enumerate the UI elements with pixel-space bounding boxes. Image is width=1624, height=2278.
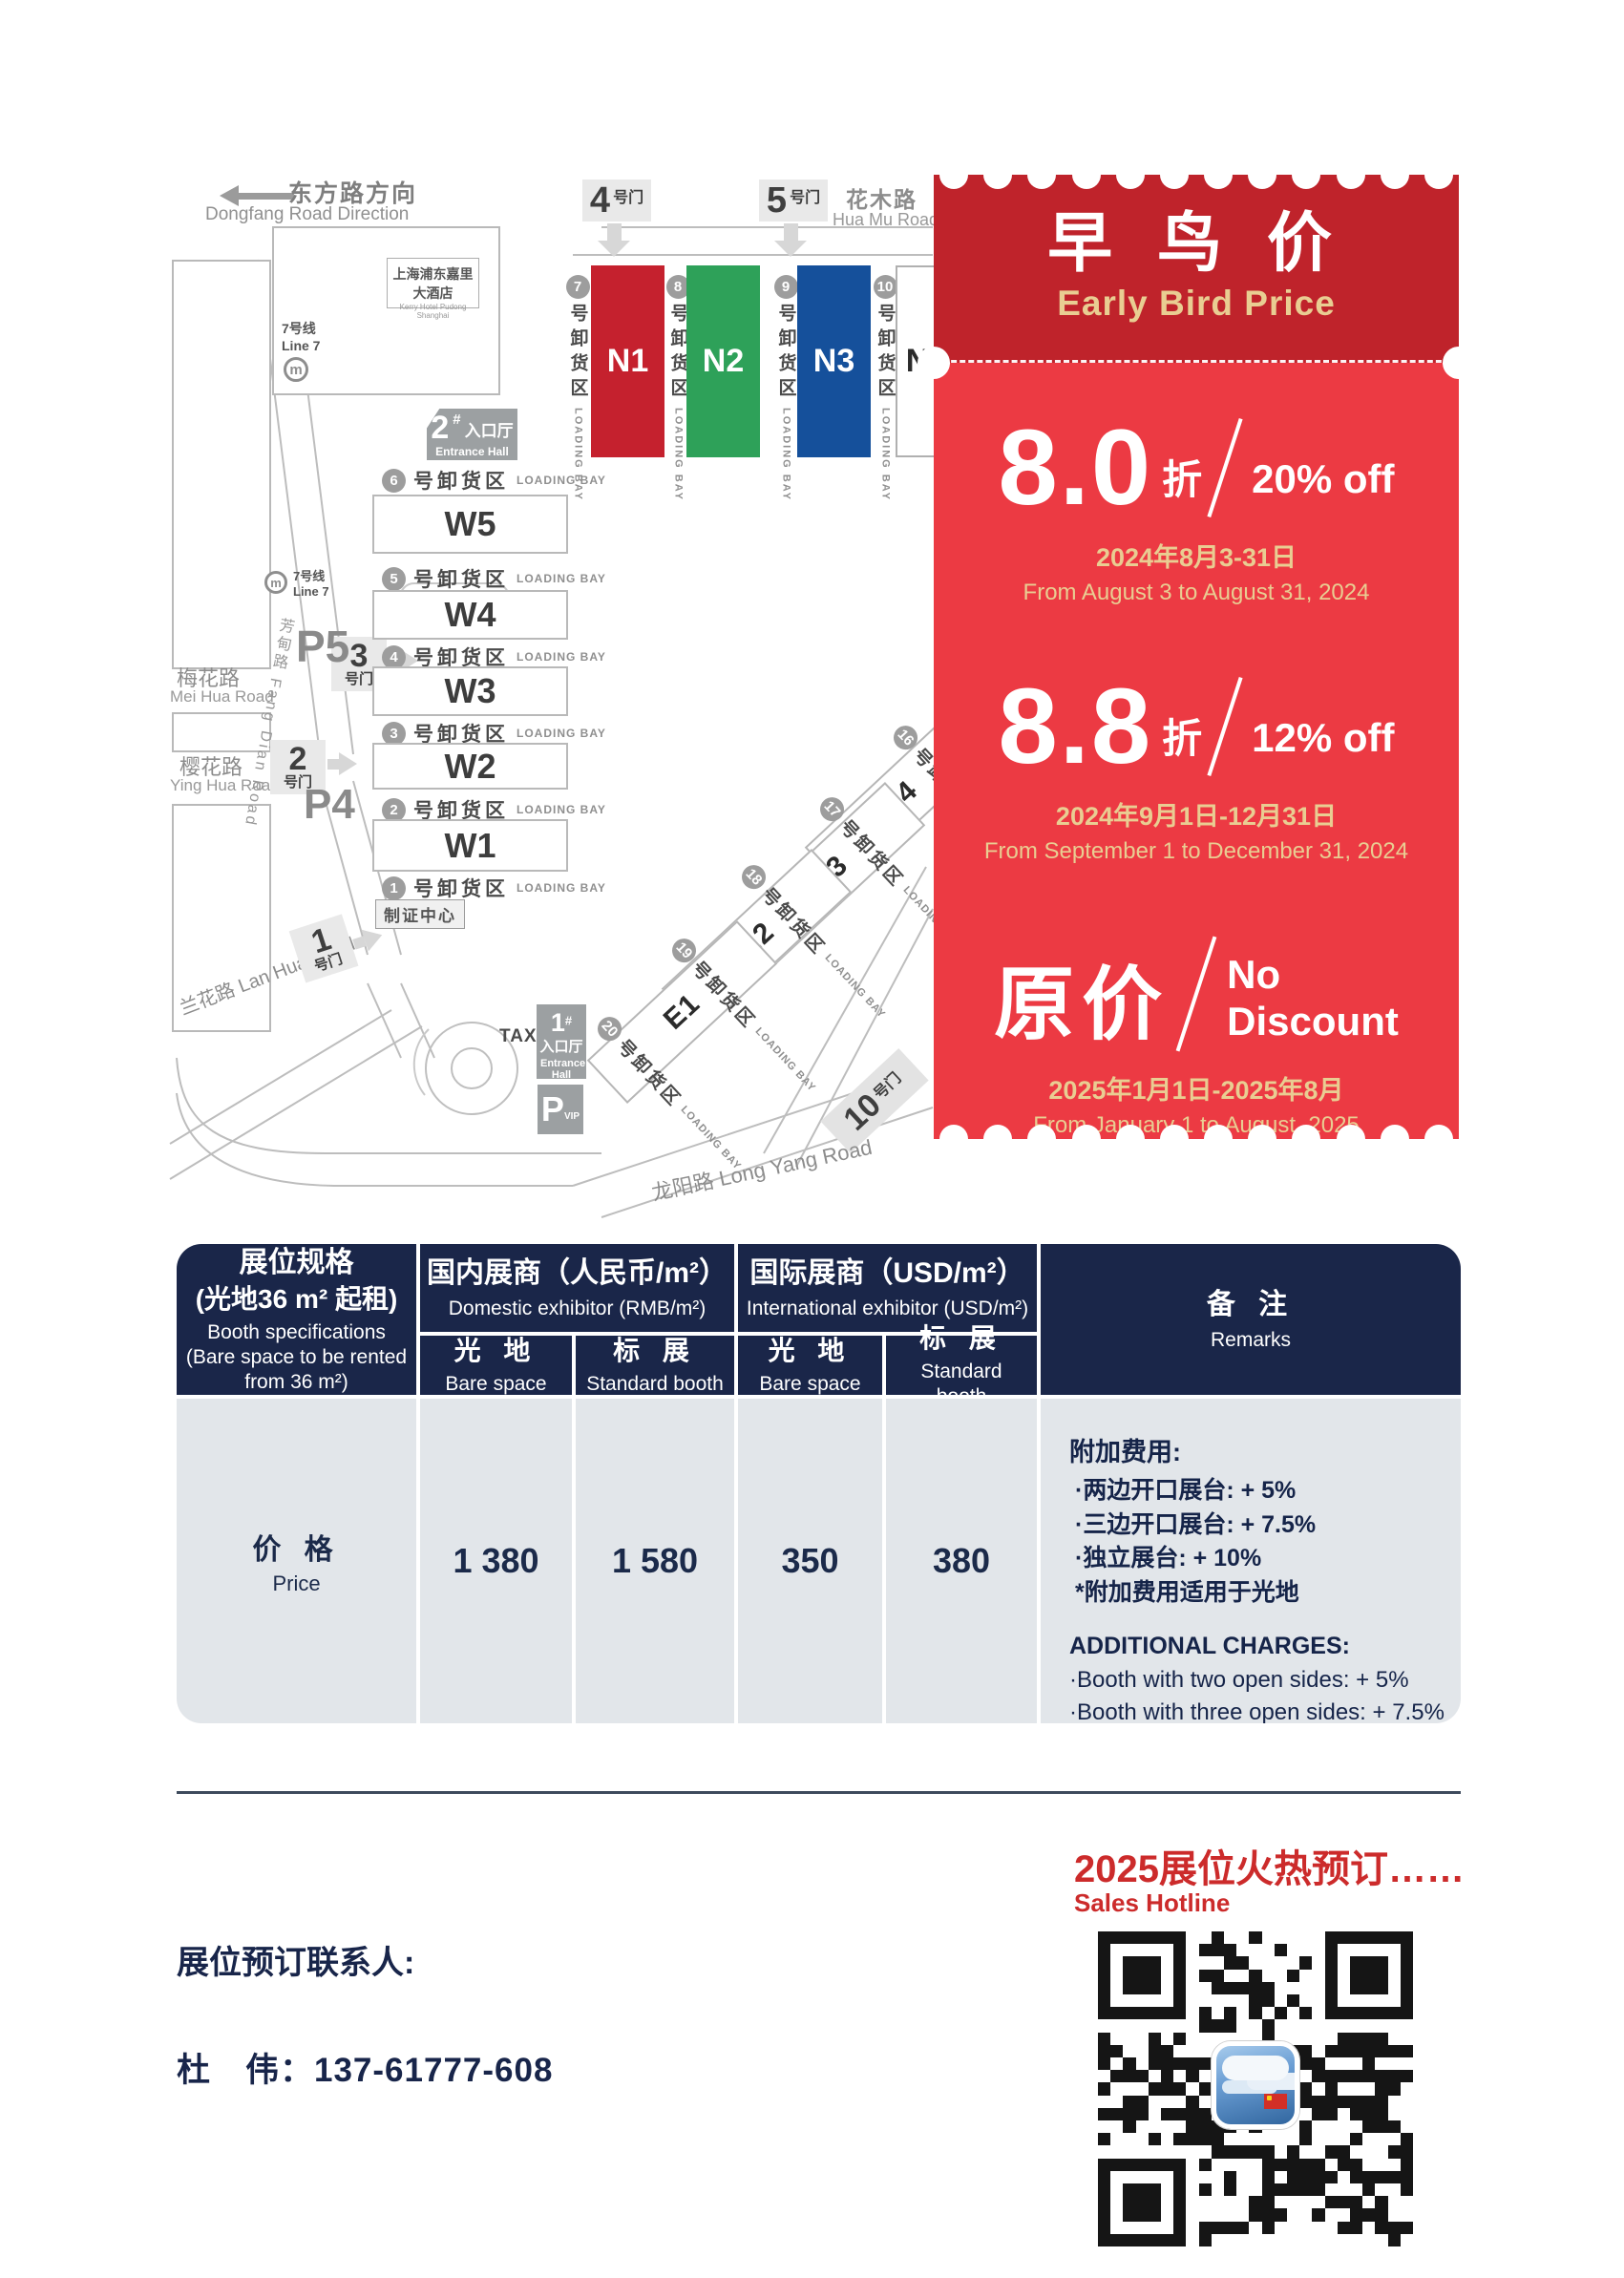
loading-bay-5: 5号卸货区LOADING BAY — [382, 564, 606, 593]
tier-3-discount: NoDiscount — [1227, 952, 1399, 1044]
tier-2-discount: 12% off — [1252, 715, 1394, 761]
contact-label: 展位预订联系人: — [177, 1936, 414, 1983]
china-flag-icon — [1264, 2094, 1287, 2109]
wechat-qr-code — [1098, 1931, 1413, 2246]
venue-map: 东方路方向 Dongfang Road Direction 4号门 5号门 花木… — [162, 143, 964, 1222]
gate-5-arrow-icon — [774, 223, 807, 257]
col-international-header: 国际展商（USD/m²） International exhibitor (US… — [738, 1244, 1037, 1332]
subcol-international-standard: 标 展Standard booth — [886, 1336, 1037, 1395]
contact-phone: 杜 伟：137-61777-608 — [177, 2043, 553, 2092]
ticket-notch-right — [1443, 347, 1475, 379]
tier-1-date-en: From August 3 to August 31, 2024 — [1023, 580, 1370, 606]
tier-3-date-zh: 2025年1月1日-2025年8月 — [1048, 1069, 1343, 1107]
subcol-international-bare: 光 地Bare space — [738, 1336, 882, 1395]
cloud-icon — [1222, 2056, 1289, 2080]
metro-icon: m — [284, 357, 308, 382]
huamu-road-label-en: Hua Mu Road — [833, 210, 939, 230]
tier-2-unit: 折 — [1162, 707, 1202, 765]
entrance-hall-2: 2# 入口厅 Entrance Hall — [427, 409, 517, 460]
early-bird-ticket: 早 鸟 价 Early Bird Price 8.0 折 20% off 202… — [934, 175, 1459, 1139]
col-remarks-header: 备 注 Remarks — [1041, 1244, 1461, 1395]
kerry-hotel-label: 上海浦东嘉里大酒店 Kerry Hotel Pudong Shanghai — [387, 258, 479, 308]
hall-w4: W4 — [372, 590, 568, 640]
footer-divider — [177, 1791, 1461, 1794]
hotline-subtitle: Sales Hotline — [1074, 1888, 1230, 1918]
price-domestic-standard: 1 580 — [576, 1399, 734, 1723]
entrance-hall-1: 1# 入口厅 Entrance Hall — [537, 1004, 586, 1079]
price-table: 展位规格 (光地36 m² 起租) Booth specifications (… — [177, 1244, 1461, 1723]
hall-w2: W2 — [372, 743, 568, 790]
tier-2-date-zh: 2024年9月1日-12月31日 — [1056, 795, 1337, 833]
west-block-a — [172, 260, 271, 669]
roundabout-inner — [451, 1047, 493, 1089]
price-domestic-bare: 1 380 — [420, 1399, 572, 1723]
flyer-page: 东方路方向 Dongfang Road Direction 4号门 5号门 花木… — [0, 0, 1624, 2278]
ticket-notch-left — [917, 347, 950, 379]
hall-n2: N2 — [686, 265, 760, 457]
loading-bay-1: 1号卸货区LOADING BAY — [382, 874, 606, 902]
line7-top-label: 7号线Line 7 — [282, 321, 320, 354]
ticket-header: 早 鸟 价 Early Bird Price — [934, 175, 1459, 363]
remarks-cell: 附加费用: ·两边开口展台: + 5% ·三边开口展台: + 7.5% ·独立展… — [1041, 1399, 1461, 1723]
slash-divider — [1208, 418, 1243, 517]
gate-5: 5号门 — [759, 179, 828, 221]
subcol-domestic-standard: 标 展Standard booth — [576, 1336, 734, 1395]
col-domestic-header: 国内展商（人民币/m²） Domestic exhibitor (RMB/m²) — [420, 1244, 734, 1332]
ticket-body: 8.0 折 20% off 2024年8月3-31日 From August 3… — [934, 363, 1459, 1139]
tier-1-discount: 20% off — [1252, 456, 1394, 502]
dongfang-direction-arrow-icon — [220, 185, 294, 206]
gate-4: 4号门 — [582, 179, 651, 221]
tier-1-unit: 折 — [1162, 448, 1202, 506]
hotline-title: 2025展位火热预订…… — [1074, 1838, 1465, 1893]
price-international-bare: 350 — [738, 1399, 882, 1723]
tier-2: 8.8 折 12% off 2024年9月1日-12月31日 From Sept… — [934, 675, 1459, 865]
parking-p5: P5 — [296, 621, 349, 672]
parking-p4: P4 — [304, 781, 355, 829]
tier-3-number: 原价 — [994, 964, 1170, 1044]
ticket-perforation-top — [939, 160, 1453, 189]
ticket-perforation-bottom — [939, 1125, 1453, 1153]
tier-2-date-en: From September 1 to December 31, 2024 — [984, 838, 1408, 865]
tier-3: 原价 NoDiscount 2025年1月1日-2025年8月 From Jan… — [934, 934, 1459, 1139]
slash-divider — [1176, 936, 1217, 1051]
tier-1-number: 8.0 — [998, 424, 1152, 512]
tier-1-date-zh: 2024年8月3-31日 — [1096, 537, 1297, 574]
hall-n1: N1 — [591, 265, 664, 457]
badge-center-label: 制证中心 — [375, 899, 465, 929]
ticket-title-en: Early Bird Price — [1057, 284, 1336, 324]
line7-left-label: 7号线Line 7 — [293, 569, 329, 599]
vip-parking: PVIP — [538, 1085, 583, 1134]
loading-bay-6: 6号卸货区LOADING BAY — [382, 466, 606, 495]
hall-w3: W3 — [372, 666, 568, 716]
gate-2-arrow-icon — [327, 752, 357, 775]
gate-4-arrow-icon — [598, 223, 630, 257]
tier-1: 8.0 折 20% off 2024年8月3-31日 From August 3… — [934, 363, 1459, 606]
subcol-domestic-bare: 光 地Bare space — [420, 1336, 572, 1395]
metro-icon-2: m — [264, 571, 287, 594]
tier-2-number: 8.8 — [998, 683, 1152, 770]
ticket-title-zh: 早 鸟 价 — [1047, 211, 1345, 276]
hall-w5: W5 — [372, 495, 568, 554]
huamu-road-label-zh: 花木路 — [846, 181, 917, 214]
price-international-standard: 380 — [886, 1399, 1037, 1723]
dongfang-road-label-en: Dongfang Road Direction — [205, 204, 409, 225]
qr-center-logo — [1212, 2041, 1299, 2129]
row-price-label: 价 格Price — [177, 1399, 416, 1723]
hall-w1: W1 — [372, 819, 568, 872]
col-booth-specs-header: 展位规格 (光地36 m² 起租) Booth specifications (… — [177, 1244, 416, 1395]
slash-divider — [1208, 677, 1243, 776]
loading-bay-10: 10号卸货区LOADING BAY — [873, 275, 897, 501]
hall-n3: N3 — [797, 265, 871, 457]
loading-bay-9: 9号卸货区LOADING BAY — [773, 275, 798, 501]
